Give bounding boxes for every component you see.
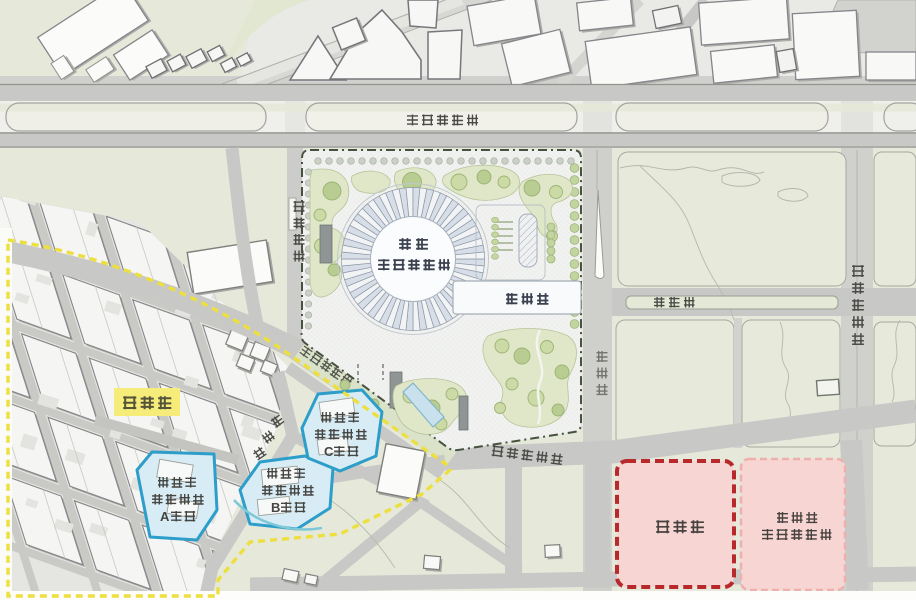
svg-text:C: C (324, 444, 334, 459)
svg-text:B: B (271, 500, 280, 515)
svg-text:A: A (160, 509, 170, 524)
